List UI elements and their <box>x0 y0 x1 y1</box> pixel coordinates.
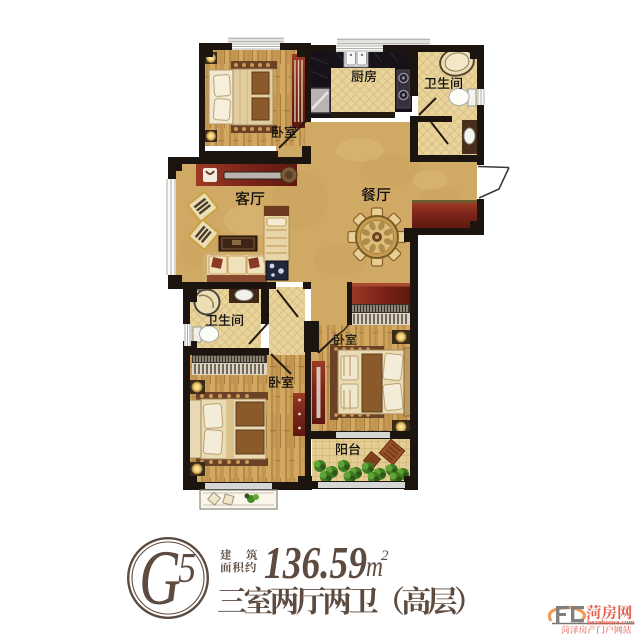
svg-text:136.59: 136.59 <box>264 538 367 588</box>
svg-text:2: 2 <box>381 548 389 564</box>
svg-text:5: 5 <box>178 545 196 591</box>
svg-text:hezehouse.com: hezehouse.com <box>587 618 635 627</box>
svg-text:G: G <box>139 535 181 621</box>
